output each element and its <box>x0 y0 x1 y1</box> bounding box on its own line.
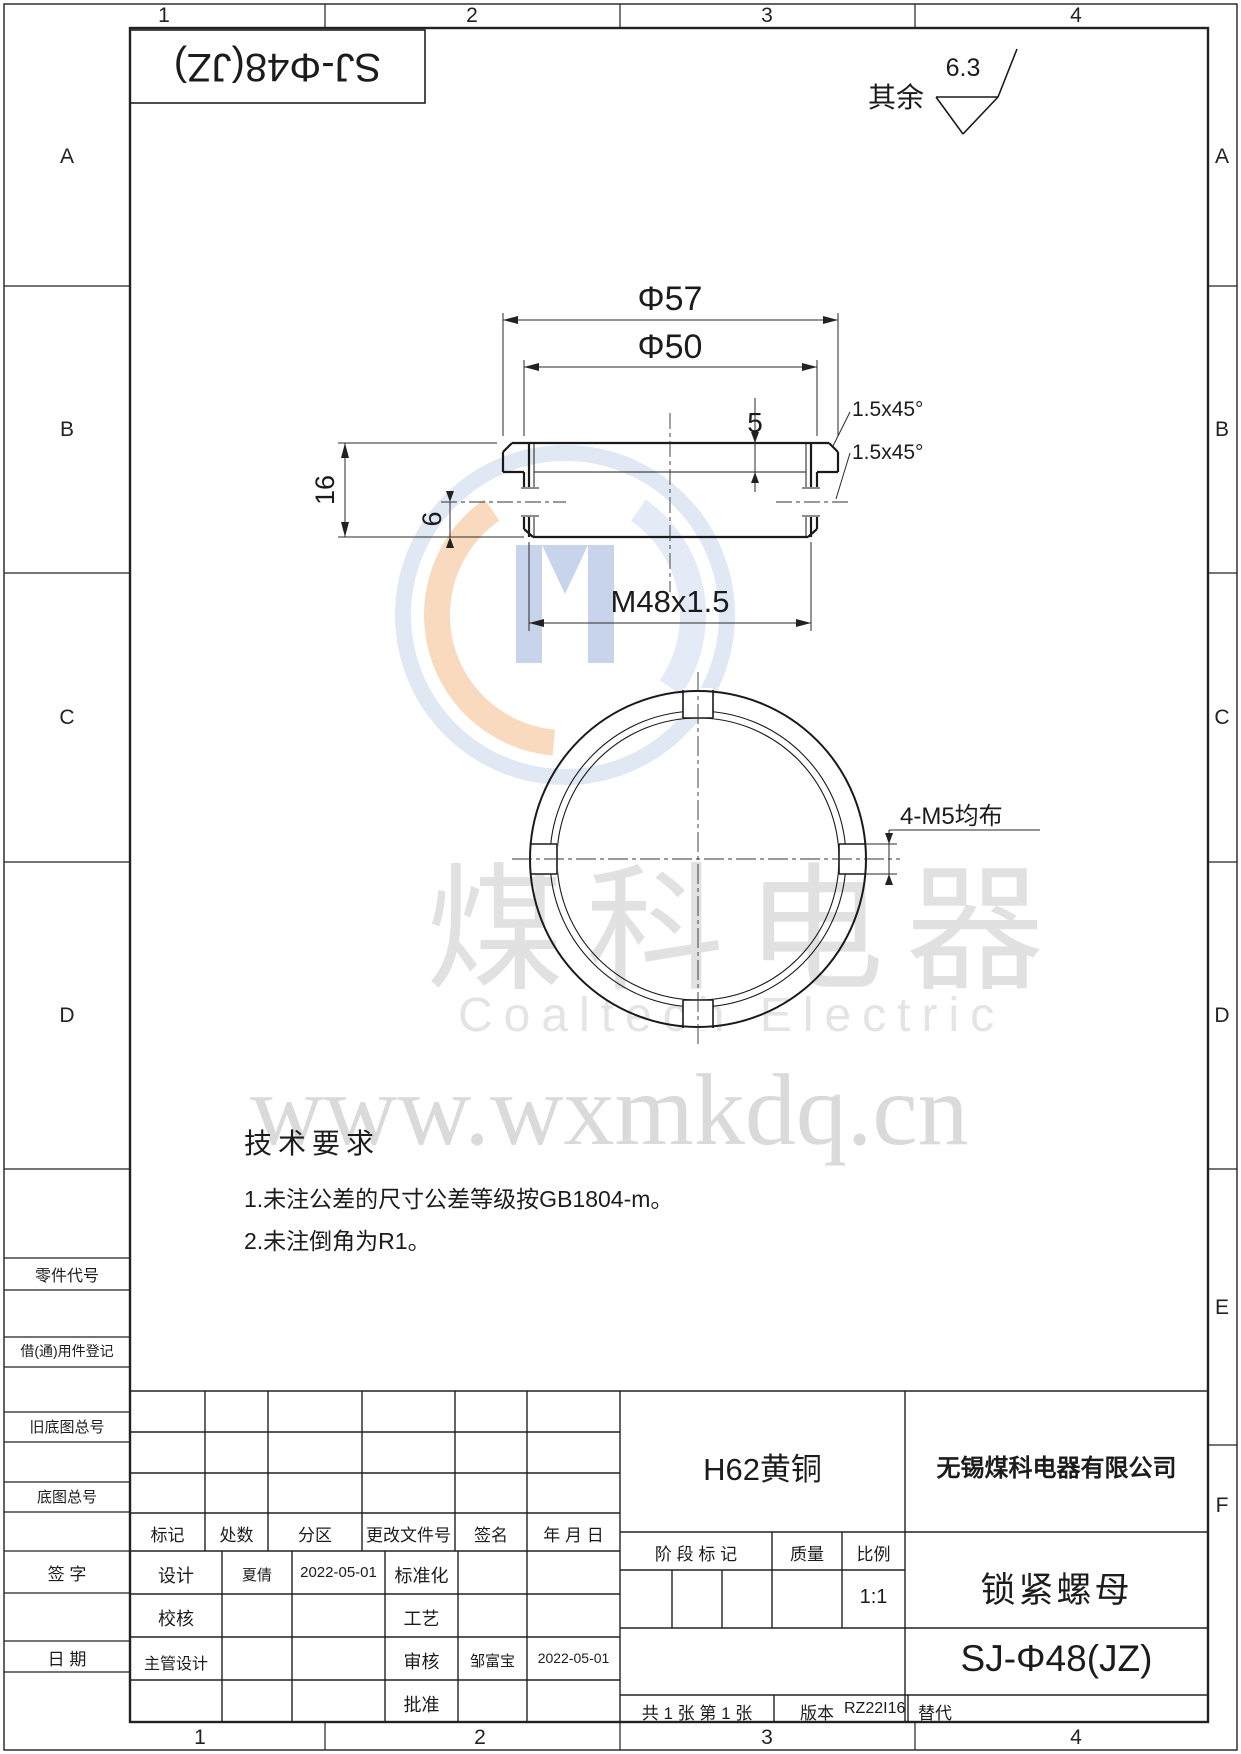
sign-design-name: 夏倩 <box>222 1564 292 1585</box>
roughness-prefix-label: 其余 <box>868 76 924 116</box>
rev-header-date: 年 月 日 <box>527 1521 620 1546</box>
tech-req-title: 技术要求 <box>244 1122 380 1162</box>
front-view <box>512 672 1040 1046</box>
zone-row-e-right: E <box>1202 1296 1241 1320</box>
tech-req-item-1: 1.未注公差的尺寸公差等级按GB1804-m。 <box>244 1180 673 1214</box>
sheet-info: 共 1 张 第 1 张 <box>620 1699 774 1724</box>
sign-audit-label: 审核 <box>385 1648 458 1674</box>
zone-col-2-top: 2 <box>452 4 492 28</box>
sign-design-date: 2022-05-01 <box>292 1564 385 1581</box>
margin-label-date: 日 期 <box>4 1645 130 1670</box>
svg-text:1.5x45°: 1.5x45° <box>852 441 923 464</box>
part-name: 锁紧螺母 <box>905 1562 1208 1613</box>
zone-row-c-left: C <box>47 706 87 730</box>
svg-text:16: 16 <box>310 475 340 505</box>
stage-mark-header: 阶 段 标 记 <box>620 1540 772 1565</box>
zone-col-2-bottom: 2 <box>460 1726 500 1750</box>
drawing-number: SJ-Φ48(JZ) <box>905 1638 1208 1680</box>
version-value: RZ22I16 <box>844 1700 905 1718</box>
flipped-drawing-number: SJ-Φ48(JZ) <box>130 30 425 103</box>
rev-header-sign: 签名 <box>455 1521 527 1546</box>
roughness-value: 6.3 <box>933 54 993 83</box>
sign-audit-date: 2022-05-01 <box>527 1650 620 1666</box>
rev-header-zone: 分区 <box>268 1521 362 1546</box>
svg-text:1.5x45°: 1.5x45° <box>852 398 923 421</box>
zone-col-1-bottom: 1 <box>180 1726 220 1750</box>
margin-label-old-master-no: 旧底图总号 <box>4 1416 130 1437</box>
company-name: 无锡煤科电器有限公司 <box>905 1448 1208 1483</box>
sign-standard-label: 标准化 <box>385 1562 458 1588</box>
zone-row-a-right: A <box>1202 145 1241 169</box>
sign-audit-name: 邹富宝 <box>458 1650 527 1671</box>
sign-check-label: 校核 <box>130 1605 222 1631</box>
material-value: H62黄铜 <box>620 1444 905 1489</box>
zone-row-b-right: B <box>1202 418 1241 442</box>
scale-value: 1:1 <box>842 1586 905 1609</box>
front-view-holes-label: 4-M5均布 <box>900 796 1003 831</box>
margin-label-master-no: 底图总号 <box>4 1486 130 1507</box>
zone-row-b-left: B <box>47 418 87 442</box>
drawing-linework: Φ57 Φ50 5 16 6 M48x1.5 1.5x45° 1.5x45° <box>0 0 1241 1754</box>
svg-text:M48x1.5: M48x1.5 <box>611 584 730 619</box>
tech-req-item-2: 2.未注倒角为R1。 <box>244 1222 431 1256</box>
svg-text:Φ57: Φ57 <box>638 280 703 318</box>
zone-row-d-left: D <box>47 1004 87 1028</box>
mass-header: 质量 <box>772 1540 842 1565</box>
zone-row-a-left: A <box>47 145 87 169</box>
drawing-sheet: 煤科电器 Coaltech Electric www.wxmkdq.cn <box>0 0 1241 1754</box>
sign-approve-label: 批准 <box>385 1691 458 1717</box>
zone-col-3-top: 3 <box>747 4 787 28</box>
replace-label: 替代 <box>918 1699 952 1724</box>
scale-header: 比例 <box>842 1540 905 1565</box>
svg-text:6: 6 <box>417 511 447 526</box>
zone-col-3-bottom: 3 <box>747 1726 787 1750</box>
margin-label-borrow-record: 借(通)用件登记 <box>4 1341 130 1361</box>
zone-col-1-top: 1 <box>144 4 184 28</box>
margin-label-signature: 签 字 <box>4 1560 130 1585</box>
svg-text:Φ50: Φ50 <box>638 328 703 366</box>
sign-design-label: 设计 <box>130 1562 222 1588</box>
zone-row-c-right: C <box>1202 706 1241 730</box>
zone-row-f-right: F <box>1202 1494 1241 1518</box>
rev-header-doc-no: 更改文件号 <box>362 1521 455 1546</box>
zone-col-4-bottom: 4 <box>1056 1726 1096 1750</box>
zone-col-4-top: 4 <box>1056 4 1096 28</box>
sign-process-label: 工艺 <box>385 1605 458 1631</box>
margin-label-part-code: 零件代号 <box>4 1262 130 1286</box>
zone-row-d-right: D <box>1202 1004 1241 1028</box>
sign-chief-label: 主管设计 <box>130 1650 222 1674</box>
rev-header-count: 处数 <box>205 1521 268 1546</box>
svg-text:5: 5 <box>747 407 763 438</box>
version-label: 版本 <box>800 1699 834 1724</box>
rev-header-mark: 标记 <box>130 1521 205 1546</box>
